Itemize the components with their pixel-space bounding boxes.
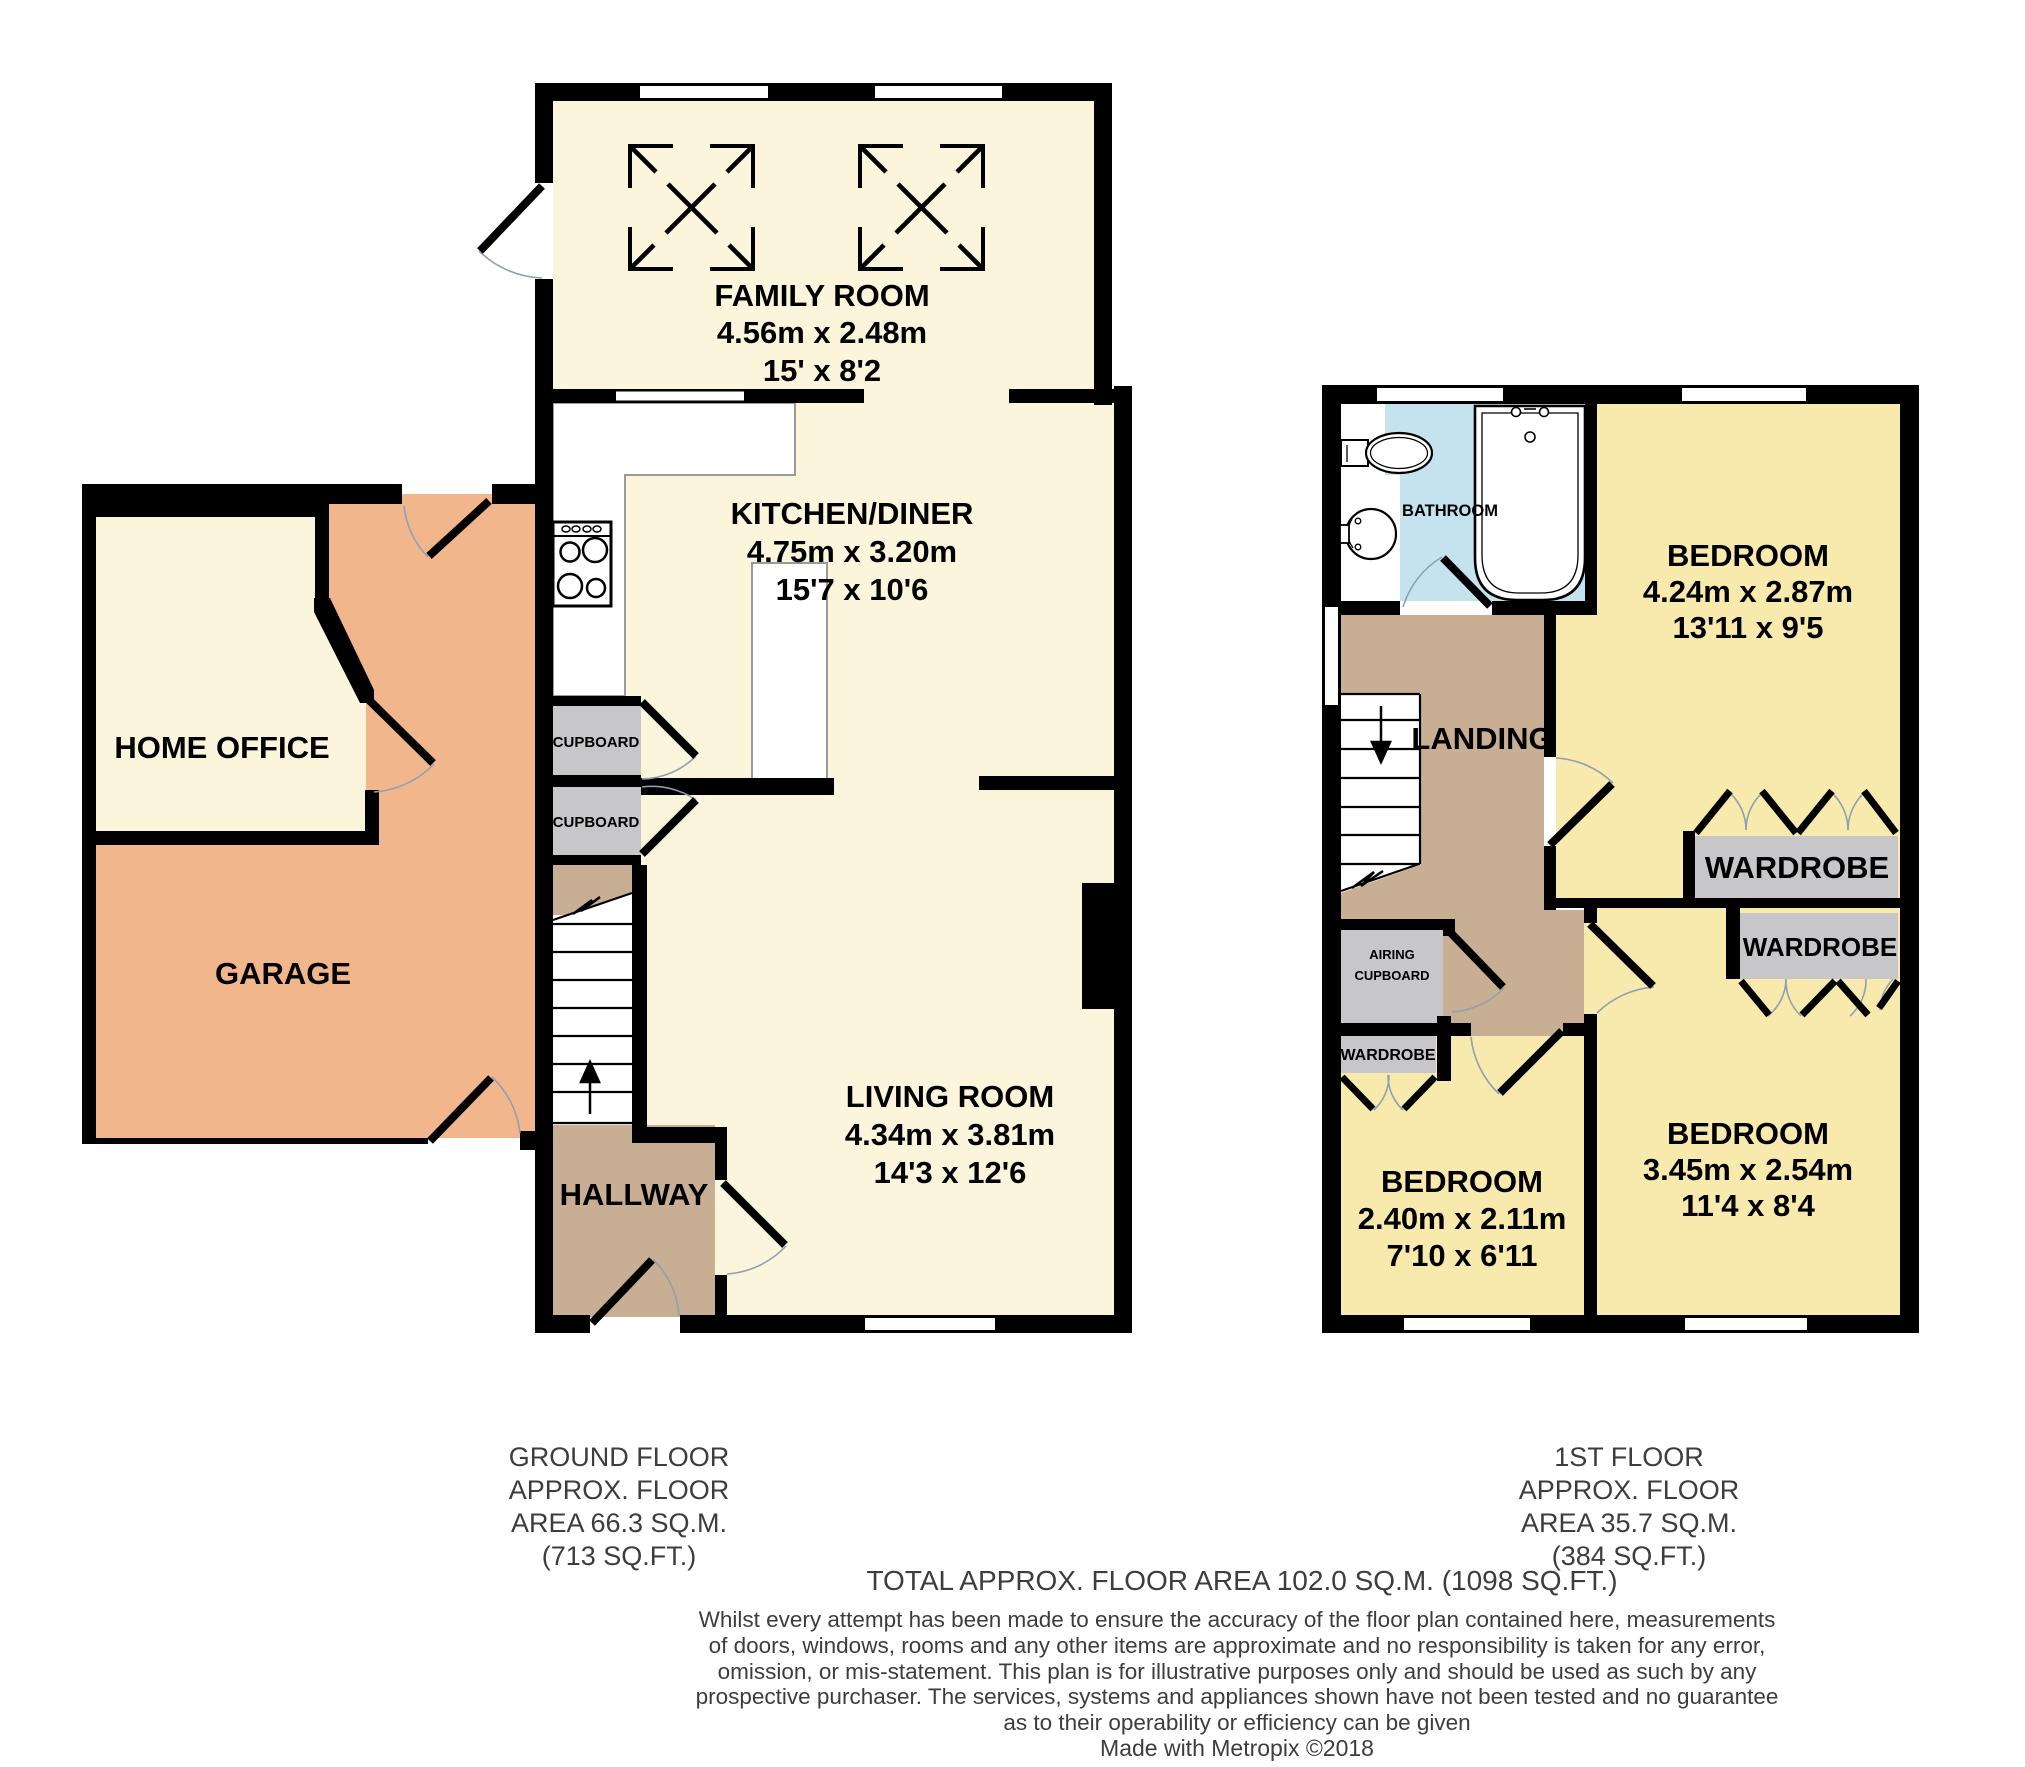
svg-text:GROUND FLOOR: GROUND FLOOR (509, 1442, 730, 1472)
svg-text:4.24m x 2.87m: 4.24m x 2.87m (1643, 574, 1853, 609)
svg-text:of doors, windows, rooms and a: of doors, windows, rooms and any other i… (709, 1633, 1766, 1658)
svg-text:APPROX. FLOOR: APPROX. FLOOR (1519, 1475, 1740, 1505)
svg-text:BATHROOM: BATHROOM (1402, 502, 1498, 520)
svg-text:15' x 8'2: 15' x 8'2 (763, 353, 881, 388)
svg-text:11'4 x 8'4: 11'4 x 8'4 (1681, 1188, 1815, 1223)
svg-text:CUPBOARD: CUPBOARD (1354, 968, 1429, 983)
svg-text:AREA 66.3 SQ.M.: AREA 66.3 SQ.M. (511, 1508, 727, 1538)
svg-text:TOTAL APPROX. FLOOR AREA 102.0: TOTAL APPROX. FLOOR AREA 102.0 SQ.M. (10… (866, 1565, 1617, 1596)
svg-text:Made with Metropix ©2018: Made with Metropix ©2018 (1100, 1735, 1374, 1761)
svg-text:FAMILY ROOM: FAMILY ROOM (714, 278, 929, 313)
svg-text:HOME OFFICE: HOME OFFICE (114, 730, 329, 765)
svg-text:3.45m x 2.54m: 3.45m x 2.54m (1643, 1152, 1853, 1187)
svg-text:GARAGE: GARAGE (215, 956, 351, 991)
svg-text:BEDROOM: BEDROOM (1667, 1116, 1829, 1151)
svg-text:APPROX. FLOOR: APPROX. FLOOR (509, 1475, 730, 1505)
svg-text:Whilst every attempt has been: Whilst every attempt has been made to en… (699, 1607, 1776, 1632)
svg-text:(713 SQ.FT.): (713 SQ.FT.) (542, 1541, 697, 1571)
svg-text:as to their operability or eff: as to their operability or efficiency ca… (1003, 1710, 1470, 1735)
svg-text:LIVING ROOM: LIVING ROOM (846, 1079, 1054, 1114)
svg-text:13'11 x 9'5: 13'11 x 9'5 (1673, 610, 1824, 645)
svg-text:4.34m x 3.81m: 4.34m x 3.81m (845, 1117, 1055, 1152)
svg-text:omission, or mis-statement. Th: omission, or mis-statement. This plan is… (718, 1659, 1758, 1684)
svg-text:4.56m x 2.48m: 4.56m x 2.48m (717, 315, 927, 350)
svg-text:HALLWAY: HALLWAY (560, 1177, 709, 1212)
svg-text:CUPBOARD: CUPBOARD (553, 814, 640, 831)
svg-text:2.40m x 2.11m: 2.40m x 2.11m (1358, 1201, 1567, 1236)
svg-text:7'10 x 6'11: 7'10 x 6'11 (1387, 1238, 1538, 1273)
svg-text:BEDROOM: BEDROOM (1381, 1164, 1543, 1199)
svg-text:15'7 x 10'6: 15'7 x 10'6 (776, 572, 929, 607)
svg-text:WARDROBE: WARDROBE (1705, 850, 1889, 885)
svg-text:KITCHEN/DINER: KITCHEN/DINER (731, 496, 974, 531)
svg-text:4.75m x 3.20m: 4.75m x 3.20m (747, 534, 957, 569)
svg-text:WARDROBE: WARDROBE (1743, 932, 1898, 962)
svg-text:prospective purchaser. The ser: prospective purchaser. The services, sys… (696, 1684, 1779, 1709)
svg-text:14'3 x 12'6: 14'3 x 12'6 (874, 1155, 1027, 1190)
svg-text:BEDROOM: BEDROOM (1667, 538, 1829, 573)
svg-text:CUPBOARD: CUPBOARD (553, 734, 640, 751)
svg-text:WARDROBE: WARDROBE (1340, 1047, 1435, 1064)
svg-text:AIRING: AIRING (1369, 947, 1415, 962)
svg-text:1ST FLOOR: 1ST FLOOR (1554, 1442, 1704, 1472)
svg-text:AREA 35.7 SQ.M.: AREA 35.7 SQ.M. (1521, 1508, 1737, 1538)
svg-text:LANDING: LANDING (1411, 721, 1552, 756)
